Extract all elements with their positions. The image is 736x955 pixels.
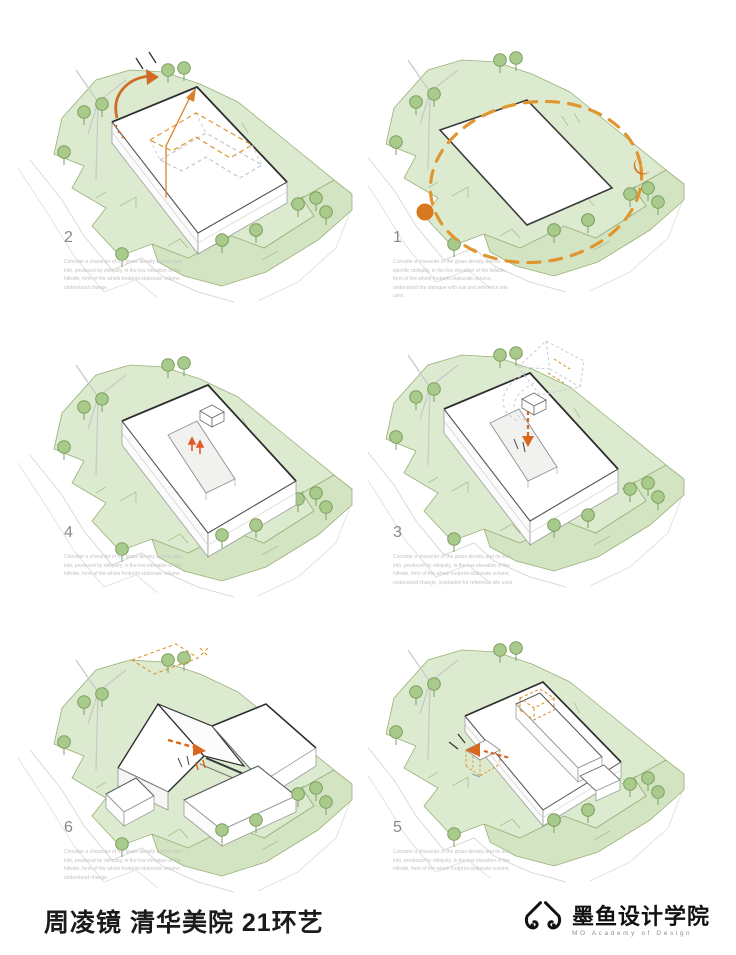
footer: 周凌镜 清华美院 21环艺 墨鱼设计学院 MO Academy of Desig…	[0, 893, 736, 955]
panel-step-5: 5 Consider a character of the grass dens…	[368, 598, 736, 893]
step-caption: Consider a character of the grass densit…	[393, 553, 517, 587]
diagram-grid: 2 Consider a character of the grass dens…	[0, 8, 736, 893]
logo-text: 墨鱼设计学院 MO Academy of Design	[572, 905, 710, 937]
panel-step-3: 3 Consider a character of the grass dens…	[368, 303, 736, 598]
panel-step-2: 2 Consider a character of the grass dens…	[0, 8, 368, 303]
brand-logo: 墨鱼设计学院 MO Academy of Design	[523, 899, 710, 943]
step-number: 2	[64, 229, 73, 247]
sun-icon	[417, 204, 434, 221]
step-caption: Consider a character of the grass densit…	[64, 553, 188, 579]
step-number: 1	[393, 229, 402, 247]
panel-step-4: 4 Consider a character of the grass dens…	[0, 303, 368, 598]
logo-subtitle: MO Academy of Design	[572, 930, 710, 937]
squid-icon	[523, 899, 563, 943]
step-caption: Consider a character of the grass densit…	[393, 258, 517, 301]
sun-ray-dashes	[136, 52, 156, 69]
step-number: 3	[393, 524, 402, 542]
page-title: 周凌镜 清华美院 21环艺	[44, 903, 324, 939]
step-caption: Consider a character of the grass densit…	[64, 848, 188, 882]
step-number: 6	[64, 819, 73, 837]
logo-name: 墨鱼设计学院	[572, 905, 710, 928]
step-caption: Consider a character of the grass densit…	[393, 848, 517, 874]
panel-step-1: 1 Consider a character of the grass dens…	[368, 8, 736, 303]
panel-step-6: 6 Consider a character of the grass dens…	[0, 598, 368, 893]
step-number: 4	[64, 524, 73, 542]
step-number: 5	[393, 819, 402, 837]
step-caption: Consider a character of the grass densit…	[64, 258, 188, 292]
